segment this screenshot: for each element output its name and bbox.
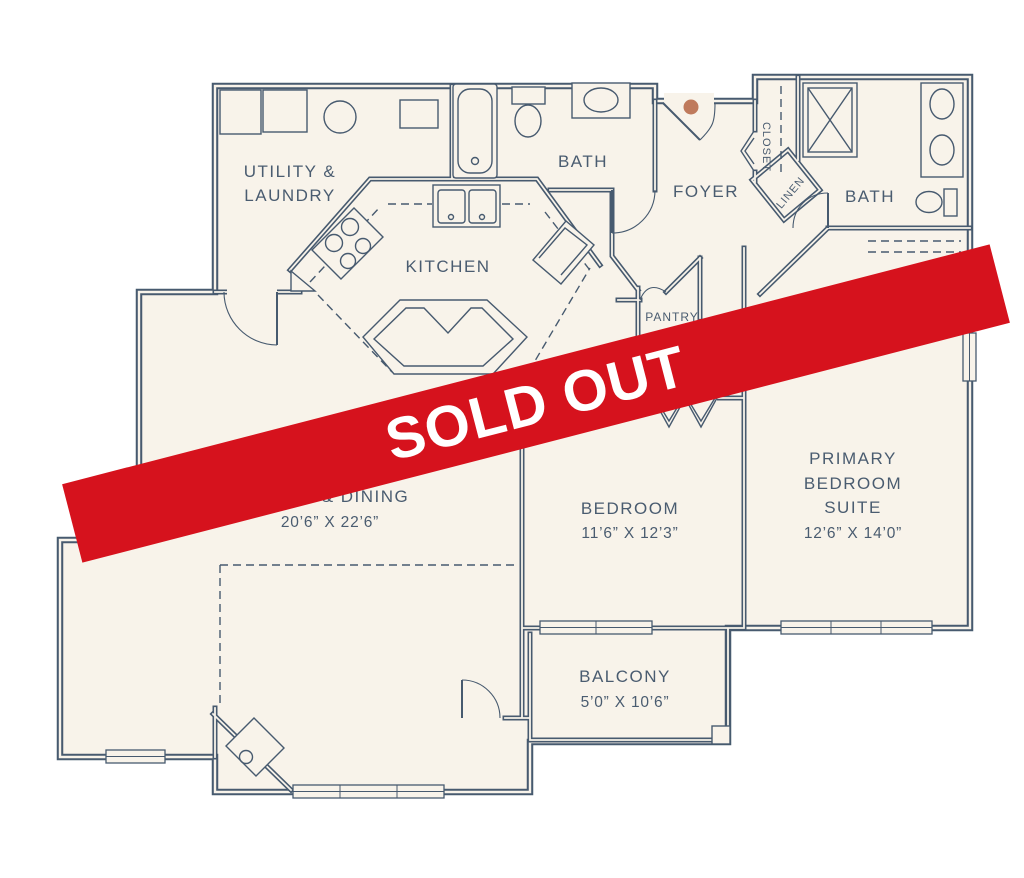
foyer-label: FOYER — [673, 182, 739, 201]
primary-bedroom-label: PRIMARY — [809, 449, 897, 468]
balcony-post — [712, 726, 730, 744]
closet-label: CLOSET — [760, 122, 772, 172]
kitchen-label: KITCHEN — [405, 257, 490, 276]
primary-bedroom-label-2: BEDROOM — [804, 474, 902, 493]
balcony-dimensions: 5’0” X 10’6” — [581, 694, 670, 711]
washer-icon — [220, 90, 261, 134]
living-dining-dimensions: 20’6” X 22’6” — [281, 514, 379, 531]
primary-bedroom-dimensions: 12’6” X 14’0” — [804, 525, 902, 542]
double-vanity-icon — [921, 83, 963, 177]
balcony-label: BALCONY — [579, 667, 671, 686]
bedroom-dimensions: 11’6” X 12’3” — [581, 525, 678, 542]
floor-plan-page: UTILITY & LAUNDRY BATH FOYER CLOSET LINE… — [0, 0, 1024, 878]
bath-2-label: BATH — [845, 187, 895, 206]
utility-laundry-label: UTILITY & — [244, 162, 337, 181]
dryer-icon — [263, 90, 307, 132]
utility-laundry-label-2: LAUNDRY — [244, 186, 335, 205]
laundry-sink-icon — [324, 101, 356, 133]
primary-bedroom-label-3: SUITE — [824, 498, 882, 517]
toilet-icon — [512, 87, 545, 104]
toilet-icon — [916, 192, 942, 213]
laundry-counter — [400, 100, 438, 128]
kitchen-sink-icon — [433, 185, 500, 227]
bedroom-label: BEDROOM — [581, 499, 679, 518]
entry-marker-dot — [684, 100, 699, 115]
bath-1-label: BATH — [558, 152, 608, 171]
